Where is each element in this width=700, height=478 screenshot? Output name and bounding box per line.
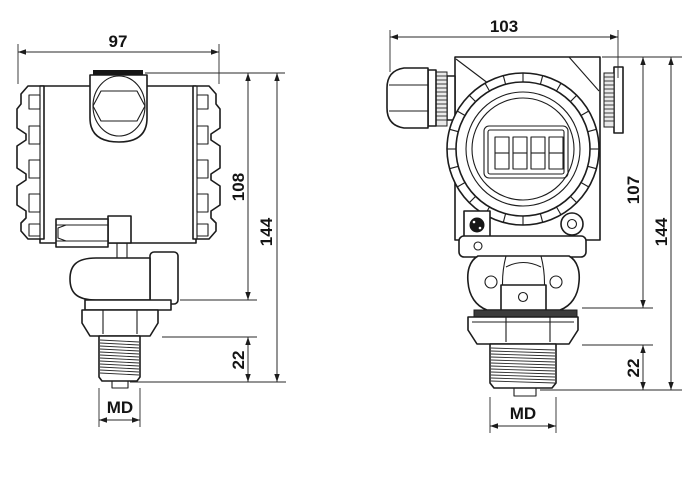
gasket-band xyxy=(474,310,577,317)
thread-tip xyxy=(514,388,536,396)
side-thread xyxy=(99,336,140,388)
lug-hole xyxy=(561,213,583,235)
front-bezel xyxy=(447,73,599,225)
dim-side-width: 97 xyxy=(109,32,128,51)
cable-gland xyxy=(387,68,455,128)
dim-side-body-height: 108 xyxy=(229,173,248,201)
dim-front-width: 103 xyxy=(490,17,518,36)
dim-front-body-height: 107 xyxy=(624,176,643,204)
front-hex-nut xyxy=(468,317,578,344)
front-thread xyxy=(490,344,556,396)
side-plug xyxy=(604,67,623,133)
dim-side-thread-length: 22 xyxy=(229,351,248,370)
front-sensor-body xyxy=(468,256,579,317)
dim-front-total-height: 144 xyxy=(652,217,671,246)
side-hex-plug xyxy=(90,70,147,142)
front-view: 103 107 144 22 xyxy=(387,17,682,433)
technical-drawing: 97 108 144 22 xyxy=(0,0,700,478)
side-terminal-block xyxy=(56,216,131,247)
dim-side-total-height: 144 xyxy=(257,217,276,246)
side-view: 97 108 144 22 xyxy=(17,32,286,427)
dim-front-thread-length: 22 xyxy=(624,359,643,378)
side-hex-nut xyxy=(82,310,158,336)
side-sensor-body xyxy=(70,252,178,310)
thread-tip xyxy=(112,381,128,388)
dim-side-thread-size: MD xyxy=(107,398,133,417)
screw-icon xyxy=(470,218,485,233)
plug-top-bar xyxy=(93,70,143,75)
dim-front-thread-size: MD xyxy=(510,404,536,423)
